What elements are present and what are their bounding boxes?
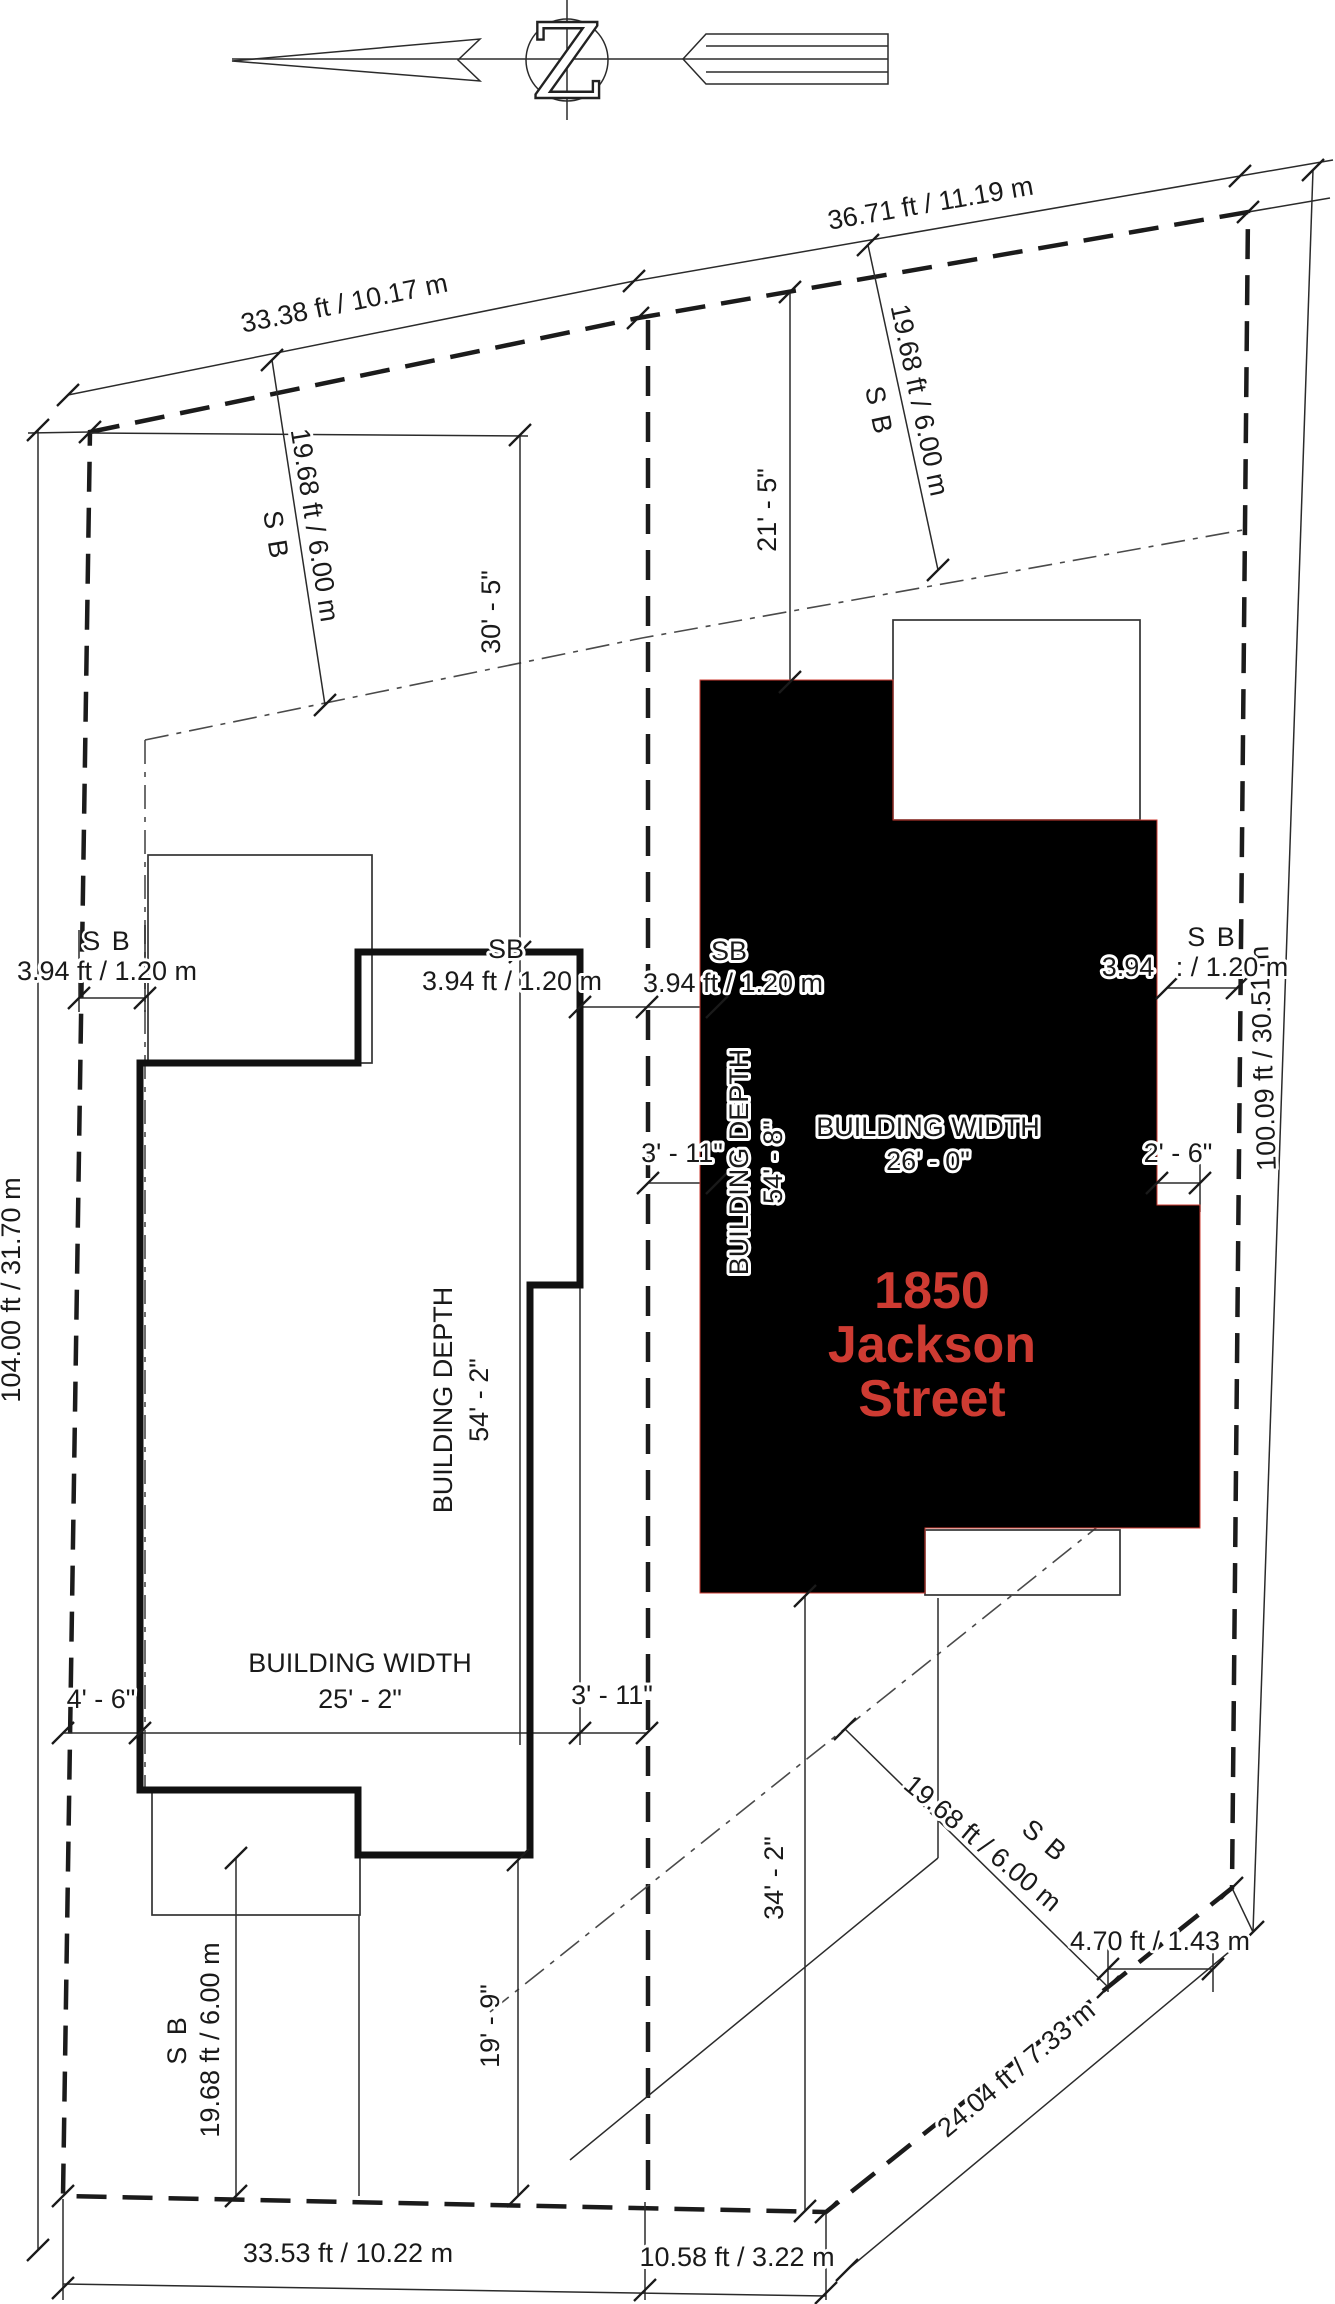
dimension-tick [314,694,336,716]
right-width-label: BUILDING WIDTH [816,1112,1040,1142]
dim-corner: 4.70 ft / 1.43 m [1070,1926,1250,1956]
svg-text:BUILDING DEPTH: BUILDING DEPTH [724,1049,754,1276]
dimension-tick [623,270,645,292]
dimension-tick [261,349,283,371]
dim-left: 104.00 ft / 31.70 m [0,1177,26,1402]
north-letter: Z [531,1,603,123]
setback-side-right-value-b: : / 1.20 m [1176,952,1289,982]
svg-text:S B: S B [859,383,899,438]
svg-text:54' - 2": 54' - 2" [464,1358,494,1442]
left-depth-label: BUILDING DEPTH 54' - 2" [428,1287,494,1514]
left-offset-right: 3' - 11" [571,1680,653,1710]
building-left-footprint [140,952,580,1855]
dim-top-right: 36.71 ft / 11.19 m [825,171,1035,236]
setback-side-mid-left-sb: SB [488,934,524,964]
svg-text:BUILDING DEPTH: BUILDING DEPTH [428,1287,458,1514]
right-offset-left: 3' - 11" [641,1138,723,1168]
left-width-label: BUILDING WIDTH [248,1648,472,1678]
setback-front-left-label: 19.68 ft / 6.00 m S B [245,426,345,630]
left-rear-offset: 19' - 9" [475,1984,505,2068]
address-line2: Jackson [828,1316,1036,1374]
dim-bottom-left: 33.53 ft / 10.22 m [243,2238,453,2268]
setback-diagonal-label: 19.68 ft / 6.00 m S B [898,1737,1094,1918]
north-arrow: Z [232,0,888,123]
dim-bottom-mid: 10.58 ft / 3.22 m [639,2242,834,2272]
address-line1: 1850 [874,1262,990,1320]
setback-side-mid-right-sb: SB [711,936,747,966]
neighbor-structure-bottom-right [925,1530,1120,1595]
setback-side-right-value-a: 3.94 [1102,952,1155,982]
setback-front-right-label: 19.68 ft / 6.00 m S B [844,302,955,508]
dimension-tick [857,234,879,256]
neighbor-structure-bottom-left [152,1790,360,1915]
dimension-tick [927,559,949,581]
dim-diagonal: 24.04 ft / 7.33 m [932,1995,1101,2143]
left-width-value: 25' - 2" [318,1684,402,1714]
address-line3: Street [858,1370,1005,1428]
right-rear-offset: 34' - 2" [759,1836,789,1920]
svg-text:54' - 8": 54' - 8" [758,1120,788,1204]
site-plan: Z [0,0,1335,2304]
setback-side-right-sb: S B [1187,922,1237,952]
dim-top-left: 33.38 ft / 10.17 m [238,268,450,339]
dimension-tick [57,384,79,406]
left-front-offset: 30' - 5" [476,570,506,654]
setback-side-left-value: 3.94 ft / 1.20 m [17,956,197,986]
north-arrowhead-icon [232,39,480,81]
setback-side-mid-right-value: 3.94 ft / 1.20 m [643,968,823,998]
dimension-tick [836,2259,858,2281]
neighbor-structure-top-right [893,620,1140,820]
svg-text:19.68 ft / 6.00 m: 19.68 ft / 6.00 m [885,302,955,499]
right-width-value: 26' - 0" [886,1146,970,1176]
svg-text:19.68 ft / 6.00 m: 19.68 ft / 6.00 m [285,426,345,623]
dimension-tick [1221,1877,1243,1899]
setback-rear-value: 19.68 ft / 6.00 m [195,1942,225,2137]
dimension-tick [1229,165,1251,187]
setback-side-left-sb: S B [82,926,132,956]
setback-side-mid-left-value: 3.94 ft / 1.20 m [422,966,602,996]
svg-text:S B: S B [257,508,294,562]
setback-rear-sb: S B [162,2015,192,2065]
right-front-offset: 21' - 5" [752,468,782,552]
right-offset-right: 2' - 6" [1144,1138,1213,1168]
left-offset-left: 4' - 6" [67,1684,136,1714]
